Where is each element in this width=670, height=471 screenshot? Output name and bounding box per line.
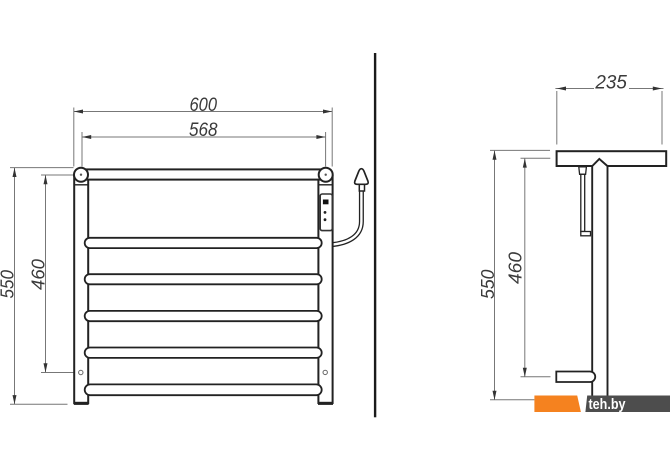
svg-text:460: 460 (506, 252, 526, 284)
svg-text:600: 600 (190, 95, 218, 116)
svg-text:460: 460 (29, 259, 49, 290)
svg-text:568: 568 (189, 120, 218, 141)
svg-text:550: 550 (478, 270, 498, 300)
svg-text:teh.by: teh.by (589, 397, 626, 413)
svg-text:235: 235 (594, 73, 627, 94)
svg-text:550: 550 (0, 270, 18, 299)
